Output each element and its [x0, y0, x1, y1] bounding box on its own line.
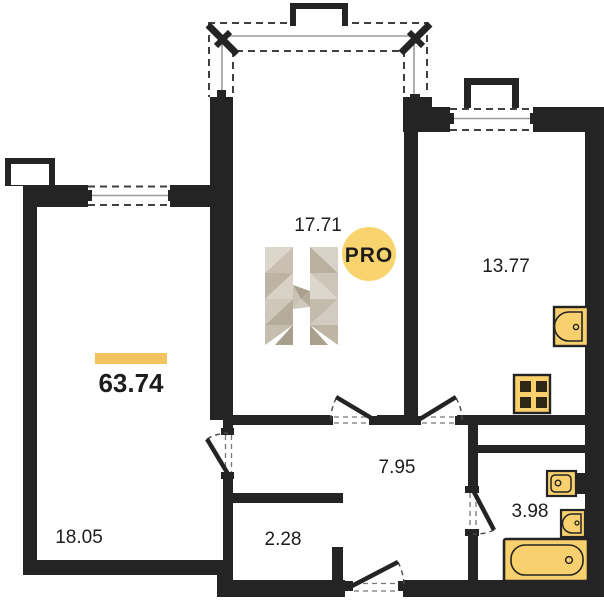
- stove-icon: [514, 375, 550, 413]
- bathtub-icon: [504, 539, 588, 581]
- wall-segment: [23, 185, 37, 575]
- balcony-window-stops: [217, 90, 420, 102]
- room-label-closet: 2.28: [265, 529, 302, 550]
- wall-segment: [418, 107, 450, 132]
- wall-segment: [377, 415, 404, 425]
- door-bathroom: [465, 486, 494, 536]
- watermark-logo: [265, 247, 338, 345]
- wall-segment: [23, 560, 227, 575]
- wall-segment: [404, 130, 418, 425]
- wall-segment: [585, 107, 604, 597]
- balcony-open-window-marks: [208, 24, 430, 54]
- wall-segment: [233, 493, 343, 503]
- window-bedroom: [85, 187, 175, 206]
- pro-badge-label: PRO: [345, 244, 394, 267]
- balcony-glazing-lines: [222, 36, 414, 94]
- kitchen-sink-icon: [554, 307, 588, 346]
- wall-segment: [468, 535, 478, 583]
- wall-segment: [457, 415, 585, 425]
- room-label-kitchen: 13.77: [482, 256, 530, 277]
- door-entrance: [344, 562, 407, 591]
- door-living-room: [325, 397, 377, 425]
- exterior-pier-box: [5, 158, 55, 186]
- floor-plan-page: PRO 63.74 17.71 13.77 18.05 7.95 2.28 3.…: [0, 0, 604, 600]
- room-label-living: 17.71: [294, 215, 342, 236]
- kitchen-window-tab: [464, 78, 519, 108]
- wall-segment: [210, 97, 233, 420]
- wall-segment: [217, 580, 345, 597]
- toilet-icon: [561, 510, 585, 537]
- door-bedroom: [207, 428, 234, 479]
- washbasin-icon: [547, 471, 588, 496]
- room-label-bathroom: 3.98: [512, 501, 549, 522]
- room-label-hallway: 7.95: [379, 457, 416, 478]
- balcony-outline: [208, 23, 428, 97]
- wall-segment: [468, 425, 478, 490]
- watermark-pro-badge: PRO: [342, 227, 396, 281]
- wall-segment: [478, 445, 585, 453]
- total-area-accent-bar: [95, 353, 167, 364]
- walls: [23, 97, 604, 597]
- wall-segment: [403, 580, 604, 597]
- wall-segment: [23, 185, 88, 207]
- room-label-bedroom: 18.05: [55, 527, 103, 548]
- window-kitchen: [447, 109, 537, 130]
- floor-plan: PRO 63.74 17.71 13.77 18.05 7.95 2.28 3.…: [0, 0, 604, 600]
- wall-segment: [223, 477, 233, 563]
- wall-segment: [233, 415, 330, 425]
- balcony-parapet-tab: [290, 3, 348, 26]
- door-kitchen: [413, 397, 463, 425]
- total-area-label: 63.74: [98, 368, 164, 398]
